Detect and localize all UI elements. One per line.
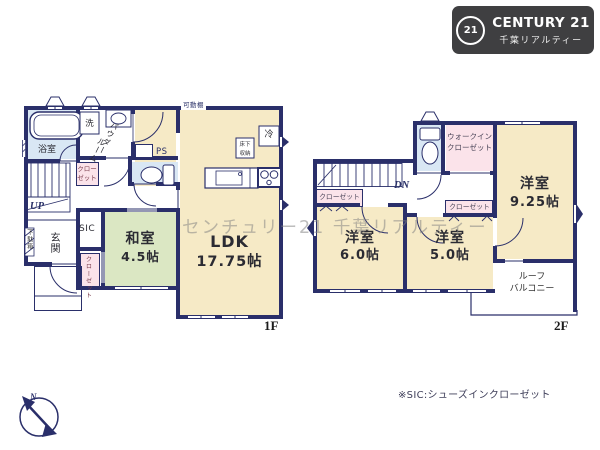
room-label-closet-left: クローゼット: [316, 193, 363, 201]
room-label-entrance-closet: クローゼット: [84, 256, 91, 299]
room-label-closet-center: クローゼット: [446, 203, 493, 211]
fridge-label: 冷: [259, 130, 279, 141]
room-size-bedroom-50: 5.0帖: [407, 248, 493, 264]
roof-balcony-outline: [471, 293, 577, 315]
century21-logo: 21 CENTURY 21 千葉リアルティー: [452, 6, 594, 54]
ps-shaft-box: [136, 145, 153, 158]
room-label-entrance: 玄関: [47, 232, 59, 254]
compass-icon: [20, 396, 58, 437]
sic-footnote: ※SIC:シューズインクローゼット: [398, 386, 551, 401]
room-label-hall-closet: クローゼット: [75, 165, 99, 184]
stove-icon: [258, 168, 281, 187]
toilet-icon-1f: [141, 165, 174, 185]
floorplan-page: センチュリー21 千葉リアルティー 21 CENTURY 21 千葉リアルティー…: [0, 0, 600, 450]
room-label-roof-balcony-2: バルコニー: [497, 284, 567, 295]
room-size-bedroom-925: 9.25帖: [497, 195, 573, 211]
stairs-2f: [317, 163, 403, 187]
underfloor-storage-label: 床下収納: [238, 141, 252, 158]
room-label-roof-balcony-1: ルーフ: [497, 272, 567, 283]
stairs-dn-label: DN: [394, 180, 409, 193]
floor1-label: 1F: [264, 318, 278, 334]
room-label-bedroom-925: 洋室: [497, 176, 573, 193]
logo-brand: CENTURY 21: [492, 15, 590, 31]
room-size-ldk: 17.75帖: [180, 254, 279, 271]
room-label-sic: SIC: [79, 224, 95, 235]
stairs-up-label: UP: [30, 201, 44, 214]
century21-seal-icon: 21: [456, 16, 485, 45]
floor2-label: 2F: [554, 318, 568, 334]
logo-subtitle: 千葉リアルティー: [499, 33, 582, 46]
room-label-laundry: 洗: [80, 119, 99, 129]
room-label-bath: 浴室: [38, 145, 56, 156]
room-label-walk-in-closet: ウォークインクローゼット: [446, 131, 493, 154]
movable-shelf-label: 可動棚: [181, 102, 206, 110]
ps-label: PS: [156, 147, 168, 157]
compass-north-label: N: [30, 392, 37, 403]
kitchen-counter-icon: [205, 168, 258, 188]
bathtub-icon: [30, 112, 83, 139]
room-size-japanese-room: 4.5帖: [105, 249, 176, 264]
room-label-japanese-room: 和室: [105, 231, 176, 248]
entrance-porch: [35, 267, 82, 311]
room-label-shoe-box: 下駄箱: [26, 229, 33, 250]
watermark: センチュリー21 千葉リアルティー: [182, 214, 488, 239]
room-size-bedroom-60: 6.0帖: [317, 248, 403, 264]
